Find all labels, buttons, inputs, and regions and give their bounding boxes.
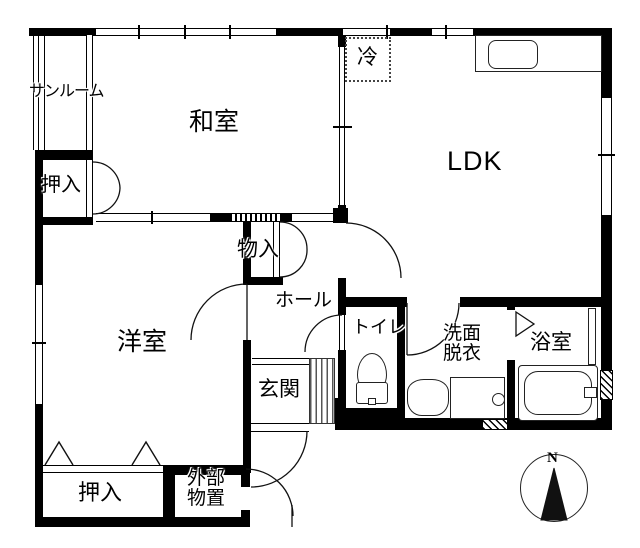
label-senmen: 洗面 脱衣 (433, 324, 491, 364)
label-genkan: 玄関 (258, 379, 300, 401)
toilet-door-leaf (339, 315, 345, 350)
window-tick (229, 25, 231, 39)
label-storage-line2: 物置 (178, 489, 234, 509)
window-ldk-north-2 (432, 28, 473, 36)
wall-left-2 (35, 404, 43, 527)
label-fridge: 冷 (357, 47, 378, 69)
label-monoiri: 物入 (237, 239, 279, 261)
wall-toilet-south (338, 408, 405, 418)
oshiire-top-front (86, 160, 93, 217)
label-yoshitsu: 洋室 (117, 329, 167, 355)
wall-center-2 (338, 205, 346, 223)
label-bathroom: 浴室 (530, 332, 572, 354)
window-tick (445, 25, 447, 39)
label-oshiire-top: 押入 (41, 175, 81, 196)
washbasin (407, 379, 449, 416)
sliding-door-washitsu-yoshitsu (96, 213, 210, 222)
sliding-door-washitsu-hall (292, 213, 338, 222)
wall-right-2 (601, 215, 612, 307)
window-tick (32, 342, 46, 344)
genkan-door-arc (251, 431, 307, 487)
floor-plan: サンルーム 和室 冷 LDK 押入 物入 ホール 洋室 玄関 トイレ 洗面 脱衣… (0, 0, 640, 548)
oshiire-bottom-front (43, 465, 163, 473)
wall-right-3 (601, 307, 612, 370)
label-ldk: LDK (447, 147, 503, 175)
window-tick (598, 154, 615, 156)
wall-sunroom-south (35, 150, 93, 160)
label-oshiire-bottom: 押入 (78, 481, 122, 504)
storage-door-arc (246, 469, 293, 516)
bath-faucet (584, 387, 597, 398)
wall-top-3 (390, 28, 432, 36)
toilet-door-arc (305, 315, 342, 352)
label-storage: 外部 物置 (178, 469, 234, 509)
kitchen-sink (488, 40, 538, 69)
wall-water-north-1 (338, 297, 407, 307)
bath-panel (588, 308, 596, 365)
window-ldk-east (601, 98, 612, 215)
label-washitsu: 和室 (189, 109, 239, 135)
senmen-step-hatch (482, 419, 508, 430)
toilet-handle (368, 398, 376, 405)
window-bath-east (600, 370, 613, 400)
label-toilet: トイレ (352, 318, 406, 337)
wall-dotted-monoiri-north (230, 213, 282, 222)
window-washitsu-north (96, 28, 276, 36)
window-yoshitsu-west (35, 285, 43, 404)
washer-drain-circle (492, 393, 505, 406)
wall-yoshitsu-east-2 (243, 340, 251, 473)
window-tick (138, 25, 140, 39)
genkan-step-line (252, 358, 309, 365)
wall-mid-2 (282, 213, 292, 222)
genkan-doma-hatch (309, 358, 335, 424)
wall-right-1 (601, 28, 612, 98)
label-senmen-line2: 脱衣 (433, 344, 491, 364)
wall-water-north-2 (460, 297, 612, 307)
label-sunroom: サンルーム (29, 84, 104, 101)
wall-mid-1 (210, 213, 230, 222)
monoiri-door-arc (280, 222, 307, 249)
closet-fold-icon (45, 442, 73, 465)
wall-top-2 (276, 28, 343, 36)
oshiire-top-door-arc (93, 188, 120, 214)
window-ldk-north-1 (343, 28, 390, 36)
compass-north-label: N (547, 451, 558, 467)
genkan-threshold (251, 423, 309, 432)
wall-oshiire-top-south (35, 217, 93, 225)
closet-fold-icon (132, 442, 160, 465)
window-tick (333, 126, 352, 128)
monoiri-door-arc (280, 249, 307, 277)
window-tick (151, 211, 153, 224)
window-tick (184, 25, 186, 39)
bathtub-inner (524, 371, 592, 415)
oshiire-top-door-arc (93, 162, 120, 188)
ldk-door-arc (346, 223, 401, 278)
wall-senmen-bath-1 (507, 297, 515, 310)
label-storage-line1: 外部 (178, 469, 234, 489)
yoshitsu-door-arc (191, 284, 247, 340)
wall-bottom (35, 517, 250, 527)
label-senmen-line1: 洗面 (433, 324, 491, 344)
label-hall: ホール (275, 291, 332, 311)
